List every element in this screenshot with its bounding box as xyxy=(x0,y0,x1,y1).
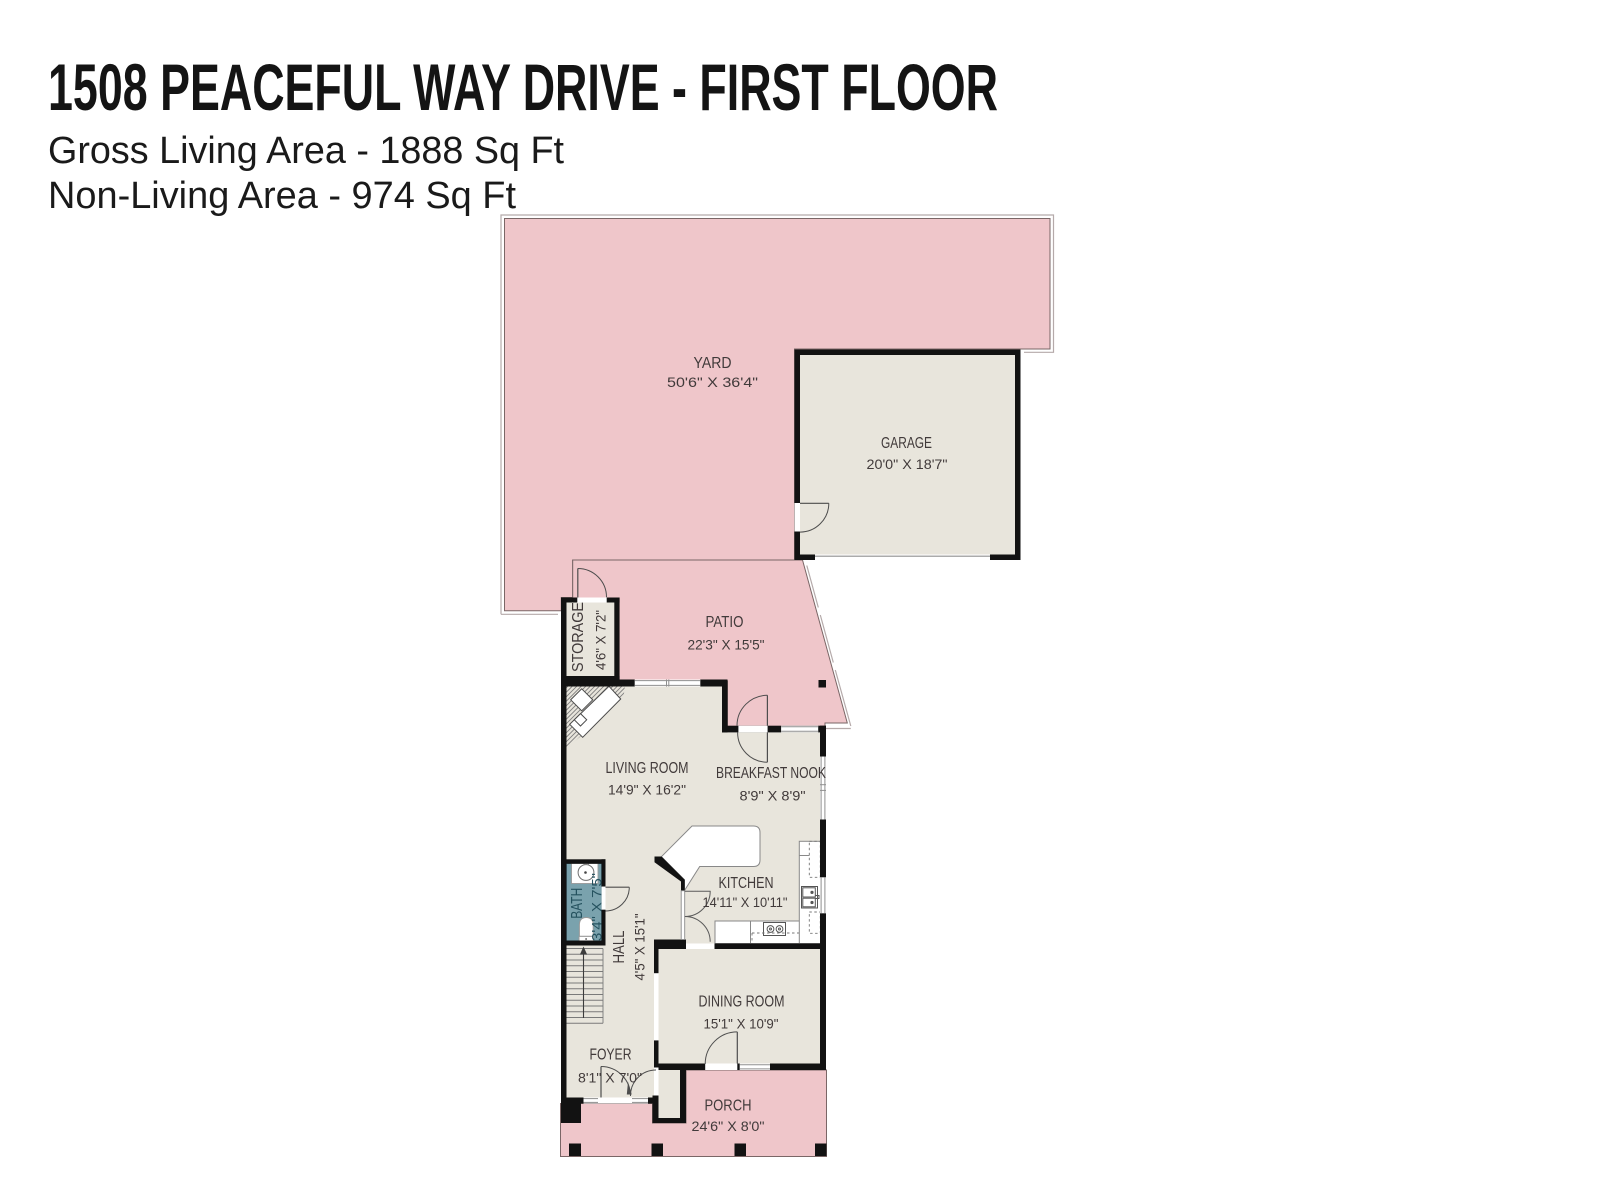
svg-text:15'1" X 10'9": 15'1" X 10'9" xyxy=(704,1016,779,1032)
svg-text:8'9" X 8'9": 8'9" X 8'9" xyxy=(740,788,806,804)
svg-text:14'11" X 10'11": 14'11" X 10'11" xyxy=(703,894,788,910)
svg-text:PORCH: PORCH xyxy=(705,1098,752,1115)
svg-text:3'4" X 7'5": 3'4" X 7'5" xyxy=(589,873,605,941)
svg-text:Non-Living Area - 974 Sq Ft: Non-Living Area - 974 Sq Ft xyxy=(48,175,516,217)
svg-text:20'0" X 18'7": 20'0" X 18'7" xyxy=(867,456,948,472)
svg-text:LIVING ROOM: LIVING ROOM xyxy=(606,760,689,777)
svg-text:Gross Living Area - 1888 Sq Ft: Gross Living Area - 1888 Sq Ft xyxy=(48,130,564,172)
svg-text:4'6" X 7'2": 4'6" X 7'2" xyxy=(593,610,609,670)
svg-text:PATIO: PATIO xyxy=(706,614,744,631)
svg-text:14'9" X 16'2": 14'9" X 16'2" xyxy=(608,782,686,798)
svg-text:8'1" X 7'0": 8'1" X 7'0" xyxy=(578,1070,642,1086)
svg-text:DINING ROOM: DINING ROOM xyxy=(699,994,785,1011)
svg-text:50'6" X 36'4": 50'6" X 36'4" xyxy=(667,374,758,390)
svg-text:22'3" X 15'5": 22'3" X 15'5" xyxy=(688,637,765,653)
svg-text:BATH: BATH xyxy=(569,888,586,919)
svg-text:YARD: YARD xyxy=(694,355,732,372)
svg-text:STORAGE: STORAGE xyxy=(570,602,587,672)
svg-text:4'5" X 15'1": 4'5" X 15'1" xyxy=(632,913,648,980)
svg-text:24'6" X 8'0": 24'6" X 8'0" xyxy=(692,1118,765,1134)
svg-text:BREAKFAST NOOK: BREAKFAST NOOK xyxy=(716,765,826,782)
svg-text:HALL: HALL xyxy=(611,930,628,963)
svg-text:FOYER: FOYER xyxy=(590,1047,632,1064)
svg-text:1508 PEACEFUL WAY DRIVE - FIRS: 1508 PEACEFUL WAY DRIVE - FIRST FLOOR xyxy=(48,50,998,124)
svg-text:KITCHEN: KITCHEN xyxy=(719,875,774,892)
svg-text:GARAGE: GARAGE xyxy=(881,435,932,452)
